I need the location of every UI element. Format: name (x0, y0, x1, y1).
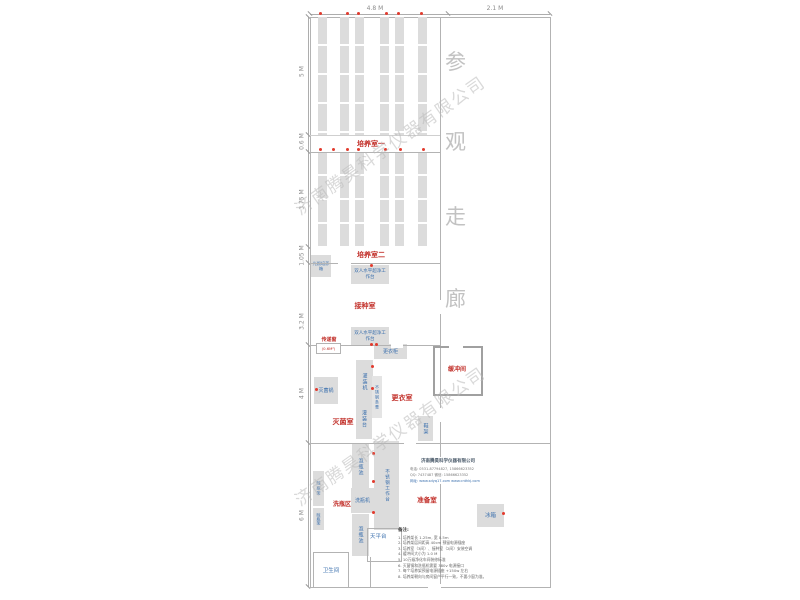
wall-culture2-inoculation (310, 263, 440, 264)
door-gap (404, 441, 416, 446)
dry-rack-2: 晾瓶架 (313, 508, 324, 530)
door-gap (449, 390, 463, 394)
outlet-dot (384, 148, 387, 151)
wall-prep-north (310, 443, 550, 444)
outlet-dot (357, 12, 360, 15)
culture-rack (355, 152, 364, 247)
outlet-dot (371, 365, 374, 368)
outlet-dot (399, 148, 402, 151)
culture-rack (395, 152, 404, 247)
outlet-dot (502, 512, 505, 515)
outlet-dot (346, 12, 349, 15)
culture-rack (418, 17, 427, 135)
corridor-char-2: 观 (445, 126, 466, 156)
outlet-dot (319, 148, 322, 151)
outlet-dot (397, 12, 400, 15)
dim-left-6m: 6 M (299, 503, 306, 529)
room-label-culture2: 培养室二 (348, 250, 394, 260)
outlet-dot (357, 148, 360, 151)
dim-left-105m: 1.05 M (299, 243, 306, 269)
door-gap (438, 300, 443, 314)
steel-worktable: 不锈钢工作台 (374, 441, 399, 530)
culture-rack (340, 17, 349, 135)
dim-left-32m: 3.2 M (299, 309, 306, 335)
culture-rack (380, 152, 389, 247)
culture-rack (355, 17, 364, 135)
clean-bench-1: 双人水平超净工作台 (351, 265, 389, 284)
room-label-culture1: 培养室一 (348, 139, 394, 149)
culture-rack (318, 152, 327, 247)
room-label-prep: 准备室 (412, 494, 442, 504)
door-gap (338, 261, 351, 266)
room-label-changing: 更衣室 (384, 393, 420, 403)
soak-pool-1: 泡瓶池 (352, 443, 369, 491)
culture-rack (340, 152, 349, 247)
dim-left-5m: 5 M (299, 59, 306, 85)
dim-left-06m: 0.6 M (299, 129, 306, 155)
dim-left-375m: 3.75 M (299, 187, 306, 213)
fridge: 冰箱 (477, 504, 504, 527)
left-dimension-line (308, 17, 309, 587)
room-label-pass-window: 传递窗 (317, 336, 341, 343)
culture-rack (318, 17, 327, 135)
wall-culture1-2 (310, 152, 440, 153)
outlet-dot (420, 12, 423, 15)
dim-width-main: 4.8 M (355, 5, 395, 12)
door-gap (449, 344, 463, 348)
dim-width-corridor: 2.1 M (475, 5, 515, 12)
company-web: 网址: www.sdyq17.com www.cnthkj.com (410, 478, 506, 484)
toilet: 卫生间 (313, 552, 349, 588)
room-label-washing: 洗瓶区 (328, 499, 356, 508)
outlet-dot (372, 480, 375, 483)
door-gap (428, 584, 441, 588)
corridor-char-3: 走 (445, 201, 466, 231)
outlet-dot (385, 12, 388, 15)
room-label-buffer: 缓冲间 (444, 364, 470, 373)
outlet-dot (370, 343, 373, 346)
outlet-dot (319, 12, 322, 15)
door-gap (391, 343, 403, 348)
room-label-inoculation: 接种室 (347, 301, 383, 311)
steel-bench: 不锈钢条凳 (372, 376, 382, 418)
culture-rack (380, 17, 389, 135)
outlet-dot (375, 343, 378, 346)
dim-left-4m: 4 M (299, 381, 306, 407)
company-name: 济南腾昊科学仪器有限公司 (421, 459, 475, 465)
door-gap (438, 408, 443, 422)
light-incubator: 光照培养箱 (311, 255, 331, 277)
pass-window-size: (0.6M²) (322, 346, 336, 351)
shoe-rack: 鞋架 (418, 416, 433, 441)
notes-block: 备注: 1. 培养架长 1.25m, 宽 0.5m 2. 培养架层间距高 40c… (398, 528, 518, 579)
corridor-char-1: 参 (445, 46, 466, 76)
outlet-dot (371, 387, 374, 390)
dry-rack-1: 晾瓶架 (313, 471, 324, 506)
culture-rack (418, 152, 427, 247)
outlet-dot (422, 148, 425, 151)
outlet-dot (346, 148, 349, 151)
company-info-block: 济南腾昊科学仪器有限公司 电话: 0531-87794827, 15866623… (410, 457, 506, 484)
outlet-dot (332, 148, 335, 151)
room-label-sterilize: 灭菌室 (325, 417, 361, 427)
floor-plan-canvas: 4.8 M 2.1 M 5 M 0.6 M 3.75 M 1.05 M 3.2 … (0, 0, 800, 600)
notes-title: 备注: (398, 528, 518, 534)
company-logo-icon (410, 457, 419, 466)
pass-window-box: (0.6M²) (316, 343, 341, 354)
outlet-dot (370, 264, 373, 267)
note-item: 8. 培养架朝向与房间窗户平行一致，不要小窗为准。 (398, 574, 518, 580)
outlet-dot (372, 452, 375, 455)
outlet-dot (372, 511, 375, 514)
balance-table: 天平台 (367, 528, 402, 562)
culture-rack (395, 17, 404, 135)
corridor-char-4: 廊 (445, 283, 466, 313)
outlet-dot (315, 388, 318, 391)
rack-row-line (310, 135, 440, 136)
wall-balance (370, 557, 371, 587)
